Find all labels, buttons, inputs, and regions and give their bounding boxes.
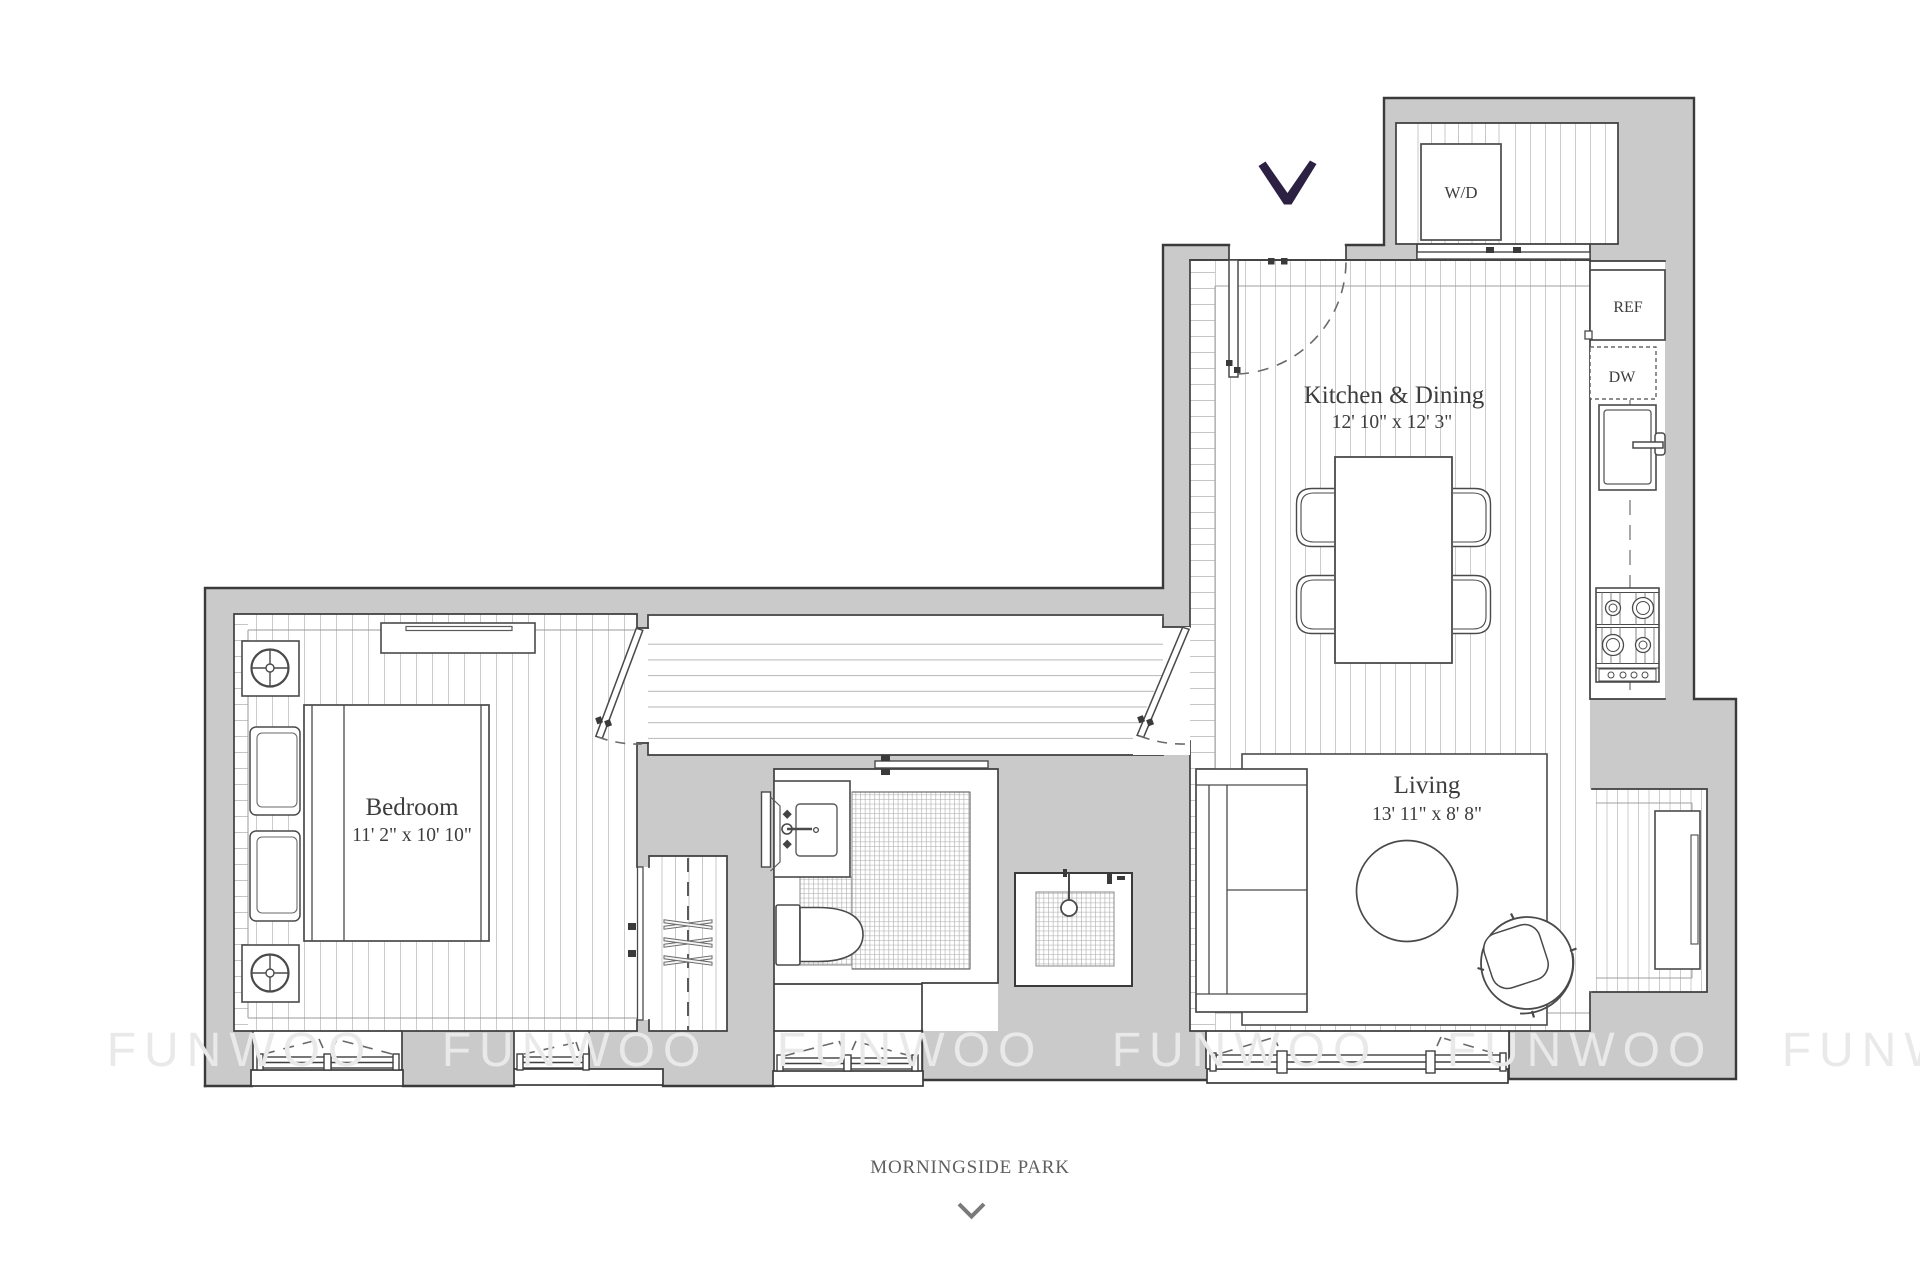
svg-text:12' 10" x 12' 3": 12' 10" x 12' 3" [1332, 412, 1452, 433]
svg-text:Living: Living [1394, 772, 1461, 799]
svg-text:FUNWOO: FUNWOO [777, 1024, 1044, 1077]
svg-text:11' 2" x 10' 10": 11' 2" x 10' 10" [352, 825, 472, 846]
svg-text:FUNWOO: FUNWOO [442, 1024, 709, 1077]
svg-text:DW: DW [1609, 369, 1637, 386]
svg-text:Kitchen & Dining: Kitchen & Dining [1304, 382, 1485, 409]
svg-text:FUNWOO: FUNWOO [1447, 1024, 1714, 1077]
svg-text:MORNINGSIDE PARK: MORNINGSIDE PARK [870, 1157, 1070, 1178]
svg-text:FUNWOO: FUNWOO [107, 1024, 374, 1077]
svg-text:Bedroom: Bedroom [365, 794, 459, 821]
svg-text:13' 11" x 8' 8": 13' 11" x 8' 8" [1372, 804, 1482, 825]
svg-text:FUNWOO: FUNWOO [1782, 1024, 1920, 1077]
svg-text:FUNWOO: FUNWOO [1112, 1024, 1379, 1077]
svg-text:REF: REF [1613, 299, 1642, 316]
svg-text:W/D: W/D [1444, 183, 1477, 202]
